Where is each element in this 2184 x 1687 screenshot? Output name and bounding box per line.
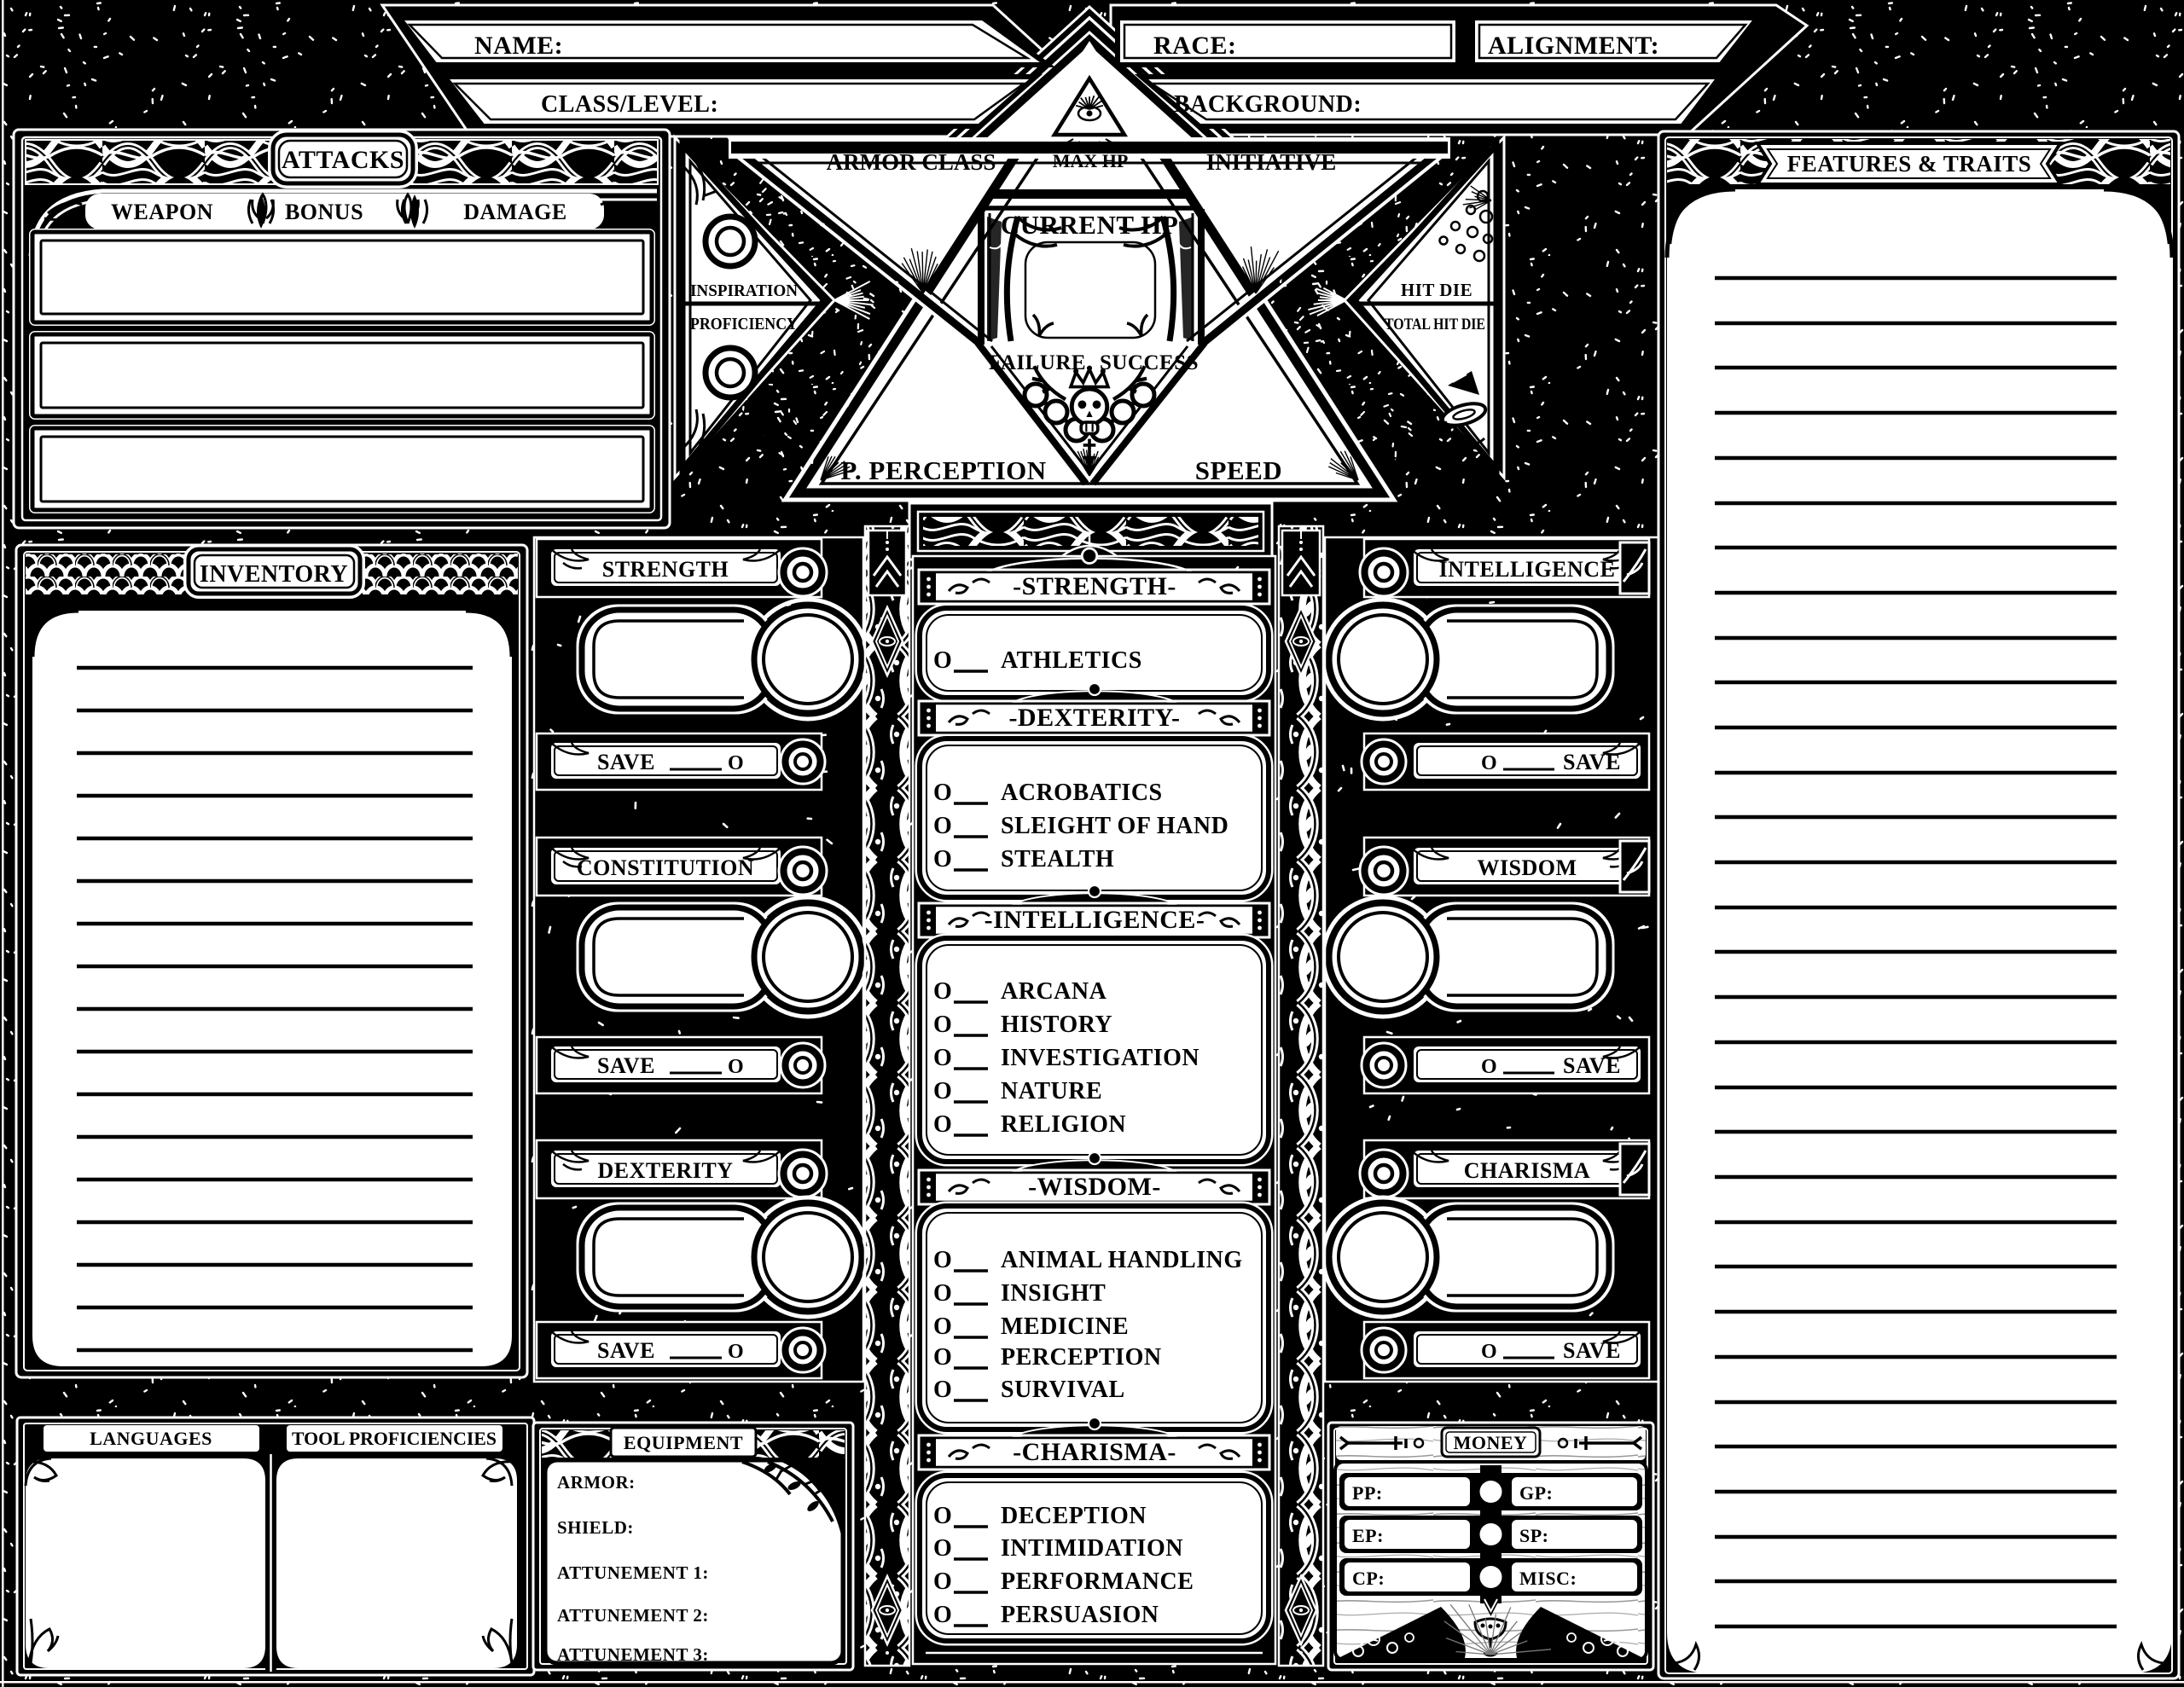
- svg-text:PERSUASION: PERSUASION: [1001, 1602, 1159, 1628]
- svg-text:O: O: [1481, 1056, 1497, 1078]
- svg-text:O: O: [933, 978, 952, 1005]
- svg-text:HIT DIE: HIT DIE: [1401, 280, 1472, 300]
- svg-text:PERFORMANCE: PERFORMANCE: [1001, 1568, 1194, 1595]
- svg-text:P. PERCEPTION: P. PERCEPTION: [840, 455, 1046, 485]
- svg-text:INSPIRATION: INSPIRATION: [690, 281, 799, 300]
- svg-text:SAVE: SAVE: [1563, 1338, 1621, 1363]
- svg-text:O: O: [933, 1568, 952, 1595]
- svg-text:O: O: [933, 1602, 952, 1628]
- svg-text:O: O: [933, 647, 952, 674]
- svg-text:PP:: PP:: [1352, 1482, 1383, 1504]
- svg-text:ATTUNEMENT 1:: ATTUNEMENT 1:: [557, 1562, 709, 1583]
- svg-text:CP:: CP:: [1352, 1568, 1385, 1589]
- svg-text:O: O: [933, 1344, 952, 1371]
- svg-text:MEDICINE: MEDICINE: [1001, 1313, 1129, 1340]
- svg-text:ANIMAL HANDLING: ANIMAL HANDLING: [1001, 1247, 1243, 1273]
- svg-text:RELIGION: RELIGION: [1001, 1111, 1126, 1138]
- svg-text:NATURE: NATURE: [1001, 1078, 1102, 1104]
- svg-text:INVESTIGATION: INVESTIGATION: [1001, 1045, 1199, 1071]
- svg-text:ARMOR CLASS: ARMOR CLASS: [827, 149, 996, 175]
- svg-text:ATTUNEMENT 3:: ATTUNEMENT 3:: [557, 1644, 709, 1665]
- svg-text:O: O: [728, 1341, 744, 1363]
- svg-text:DECEPTION: DECEPTION: [1001, 1503, 1147, 1529]
- svg-text:ARCANA: ARCANA: [1001, 978, 1107, 1005]
- svg-text:O: O: [933, 1280, 952, 1307]
- svg-text:O: O: [933, 1045, 952, 1071]
- svg-text:DAMAGE: DAMAGE: [463, 200, 566, 224]
- svg-text:CHARISMA: CHARISMA: [1464, 1158, 1590, 1183]
- svg-text:CONSTITUTION: CONSTITUTION: [577, 855, 754, 880]
- svg-text:O: O: [933, 1503, 952, 1529]
- svg-text:NAME:: NAME:: [474, 32, 563, 60]
- svg-text:O: O: [933, 1535, 952, 1562]
- svg-text:FEATURES & TRAITS: FEATURES & TRAITS: [1787, 151, 2032, 177]
- svg-text:ATHLETICS: ATHLETICS: [1001, 647, 1142, 674]
- svg-text:SAVE: SAVE: [597, 1338, 655, 1363]
- svg-text:SPEED: SPEED: [1195, 455, 1282, 485]
- svg-text:DEXTERITY: DEXTERITY: [597, 1158, 733, 1183]
- svg-text:ATTACKS: ATTACKS: [282, 146, 404, 174]
- svg-text:EQUIPMENT: EQUIPMENT: [624, 1432, 743, 1453]
- svg-text:O: O: [933, 1012, 952, 1038]
- svg-text:O: O: [728, 752, 744, 774]
- svg-text:SAVE: SAVE: [1563, 1053, 1621, 1078]
- svg-text:HISTORY: HISTORY: [1001, 1012, 1112, 1038]
- svg-text:-WISDOM-: -WISDOM-: [1028, 1173, 1161, 1201]
- svg-text:INVENTORY: INVENTORY: [200, 561, 348, 588]
- svg-text:O: O: [933, 1377, 952, 1403]
- svg-text:SHIELD:: SHIELD:: [557, 1517, 634, 1538]
- svg-text:SAVE: SAVE: [597, 1053, 655, 1078]
- svg-text:BONUS: BONUS: [285, 200, 363, 224]
- svg-text:CLASS/LEVEL:: CLASS/LEVEL:: [541, 91, 718, 118]
- svg-text:INSIGHT: INSIGHT: [1001, 1280, 1106, 1307]
- svg-text:SAVE: SAVE: [597, 750, 655, 774]
- svg-text:-INTELLIGENCE-: -INTELLIGENCE-: [985, 906, 1205, 934]
- svg-text:-STRENGTH-: -STRENGTH-: [1013, 572, 1176, 600]
- svg-text:O: O: [933, 846, 952, 872]
- svg-text:STEALTH: STEALTH: [1001, 846, 1114, 872]
- svg-text:WEAPON: WEAPON: [111, 200, 213, 224]
- svg-text:PROFICIENCY: PROFICIENCY: [690, 315, 798, 333]
- svg-text:INTELLIGENCE: INTELLIGENCE: [1439, 557, 1616, 582]
- svg-text:LANGUAGES: LANGUAGES: [90, 1428, 212, 1449]
- svg-text:O: O: [1481, 752, 1497, 774]
- svg-text:INITIATIVE: INITIATIVE: [1206, 149, 1337, 175]
- svg-text:ATTUNEMENT 2:: ATTUNEMENT 2:: [557, 1605, 709, 1626]
- svg-text:O: O: [728, 1056, 744, 1078]
- svg-text:MISC:: MISC:: [1519, 1568, 1577, 1589]
- svg-text:SAVE: SAVE: [1563, 750, 1621, 774]
- svg-text:-DEXTERITY-: -DEXTERITY-: [1008, 704, 1180, 732]
- svg-text:MONEY: MONEY: [1454, 1432, 1528, 1453]
- svg-text:PERCEPTION: PERCEPTION: [1001, 1344, 1162, 1371]
- svg-text:O: O: [933, 1313, 952, 1340]
- svg-text:BACKGROUND:: BACKGROUND:: [1174, 91, 1362, 118]
- svg-text:RACE:: RACE:: [1153, 32, 1237, 60]
- svg-text:WISDOM: WISDOM: [1477, 855, 1577, 880]
- svg-text:O: O: [1481, 1341, 1497, 1363]
- svg-text:O: O: [933, 1111, 952, 1138]
- svg-text:TOOL PROFICIENCIES: TOOL PROFICIENCIES: [292, 1428, 497, 1449]
- svg-text:STRENGTH: STRENGTH: [602, 557, 729, 582]
- svg-text:-CHARISMA-: -CHARISMA-: [1013, 1438, 1176, 1466]
- svg-text:SURVIVAL: SURVIVAL: [1001, 1377, 1125, 1403]
- svg-text:ACROBATICS: ACROBATICS: [1001, 780, 1163, 806]
- svg-text:SUCCESS: SUCCESS: [1100, 351, 1199, 374]
- svg-text:O: O: [933, 1247, 952, 1273]
- svg-text:ALIGNMENT:: ALIGNMENT:: [1488, 32, 1659, 60]
- svg-text:TOTAL HIT DIE: TOTAL HIT DIE: [1385, 316, 1485, 333]
- svg-text:O: O: [933, 780, 952, 806]
- svg-text:MAX HP: MAX HP: [1053, 150, 1129, 171]
- svg-text:GP:: GP:: [1519, 1482, 1553, 1504]
- svg-text:EP:: EP:: [1352, 1525, 1384, 1546]
- svg-text:SP:: SP:: [1519, 1525, 1549, 1546]
- svg-text:O: O: [933, 813, 952, 839]
- svg-text:INTIMIDATION: INTIMIDATION: [1001, 1535, 1183, 1562]
- svg-text:SLEIGHT OF HAND: SLEIGHT OF HAND: [1001, 813, 1228, 839]
- svg-text:ARMOR:: ARMOR:: [557, 1472, 636, 1493]
- svg-text:O: O: [933, 1078, 952, 1104]
